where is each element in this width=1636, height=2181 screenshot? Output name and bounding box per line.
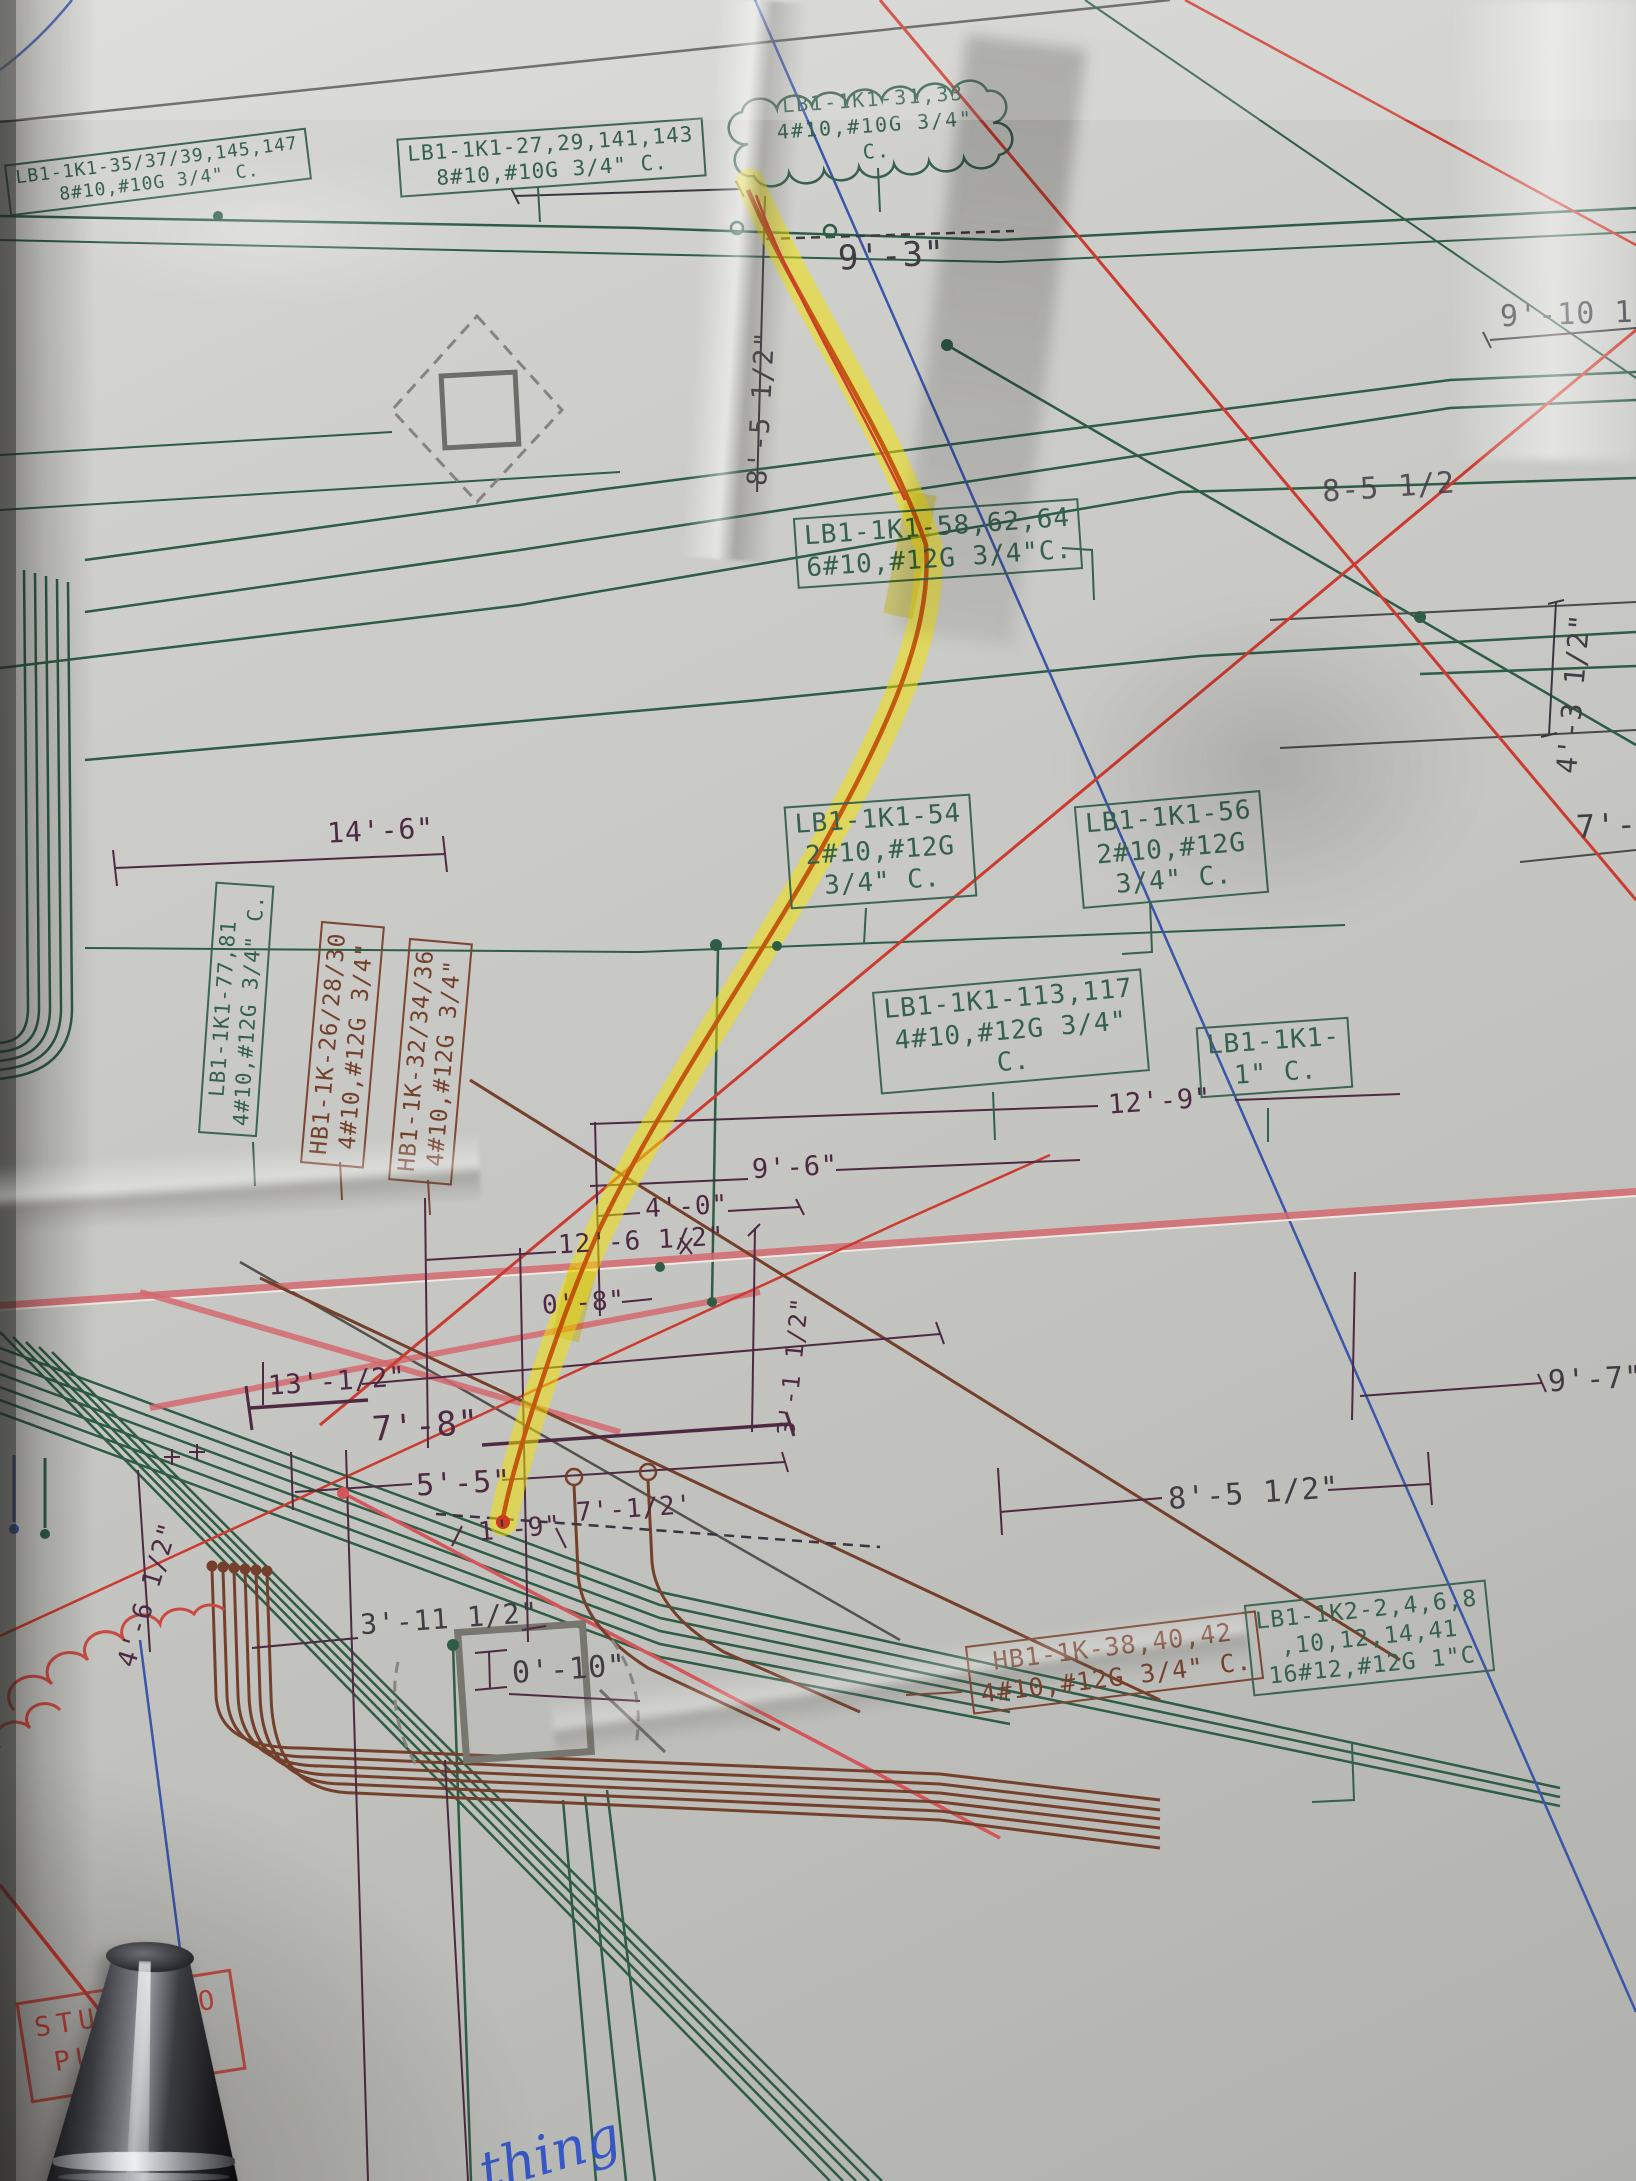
callout-lb1-1k1-56: LB1-1K1-56 2#10,#12G 3/4" C.	[1074, 790, 1269, 909]
dim-9-3: 9'-3"	[837, 233, 946, 279]
dim-4-0: 4'-0"	[644, 1190, 729, 1224]
dim-7-3: 7'-3	[1575, 804, 1636, 846]
dim-5-5: 5'-5"	[415, 1464, 512, 1504]
pen-band2	[58, 2173, 229, 2181]
callout-cloud-lb1-1k1-31: LB1-1K1-31,33 4#10,#10G 3/4" C.	[763, 78, 988, 171]
dim-9-7: 9'-7"	[1547, 1360, 1636, 1400]
dim-14-6: 14'-6"	[326, 811, 435, 850]
pen	[46, 1949, 248, 2181]
pen-band	[53, 2152, 235, 2171]
diamond-pull-box	[392, 316, 562, 502]
callout-lb1-1k1-54: LB1-1K1-54 2#10,#12G 3/4" C.	[784, 794, 977, 910]
blueprint-photo: LB1-1K1-35/37/39,145,147 8#10,#10G 3/4" …	[0, 0, 1636, 2181]
dim-0-8: 0'-8"	[541, 1285, 626, 1321]
pink-feeder-lines	[0, 1192, 1636, 1432]
callout-lb1-1k1-1c: LB1-1K1- 1" C.	[1196, 1017, 1354, 1099]
bottom-square-pad	[458, 1624, 592, 1760]
dim-9-6: 9'-6"	[751, 1150, 839, 1185]
dim-9-10-half: 9'-10 1/2"	[1499, 293, 1636, 335]
dim-7-8: 7'-8"	[371, 1402, 481, 1449]
diamond-inner-square	[441, 372, 519, 448]
